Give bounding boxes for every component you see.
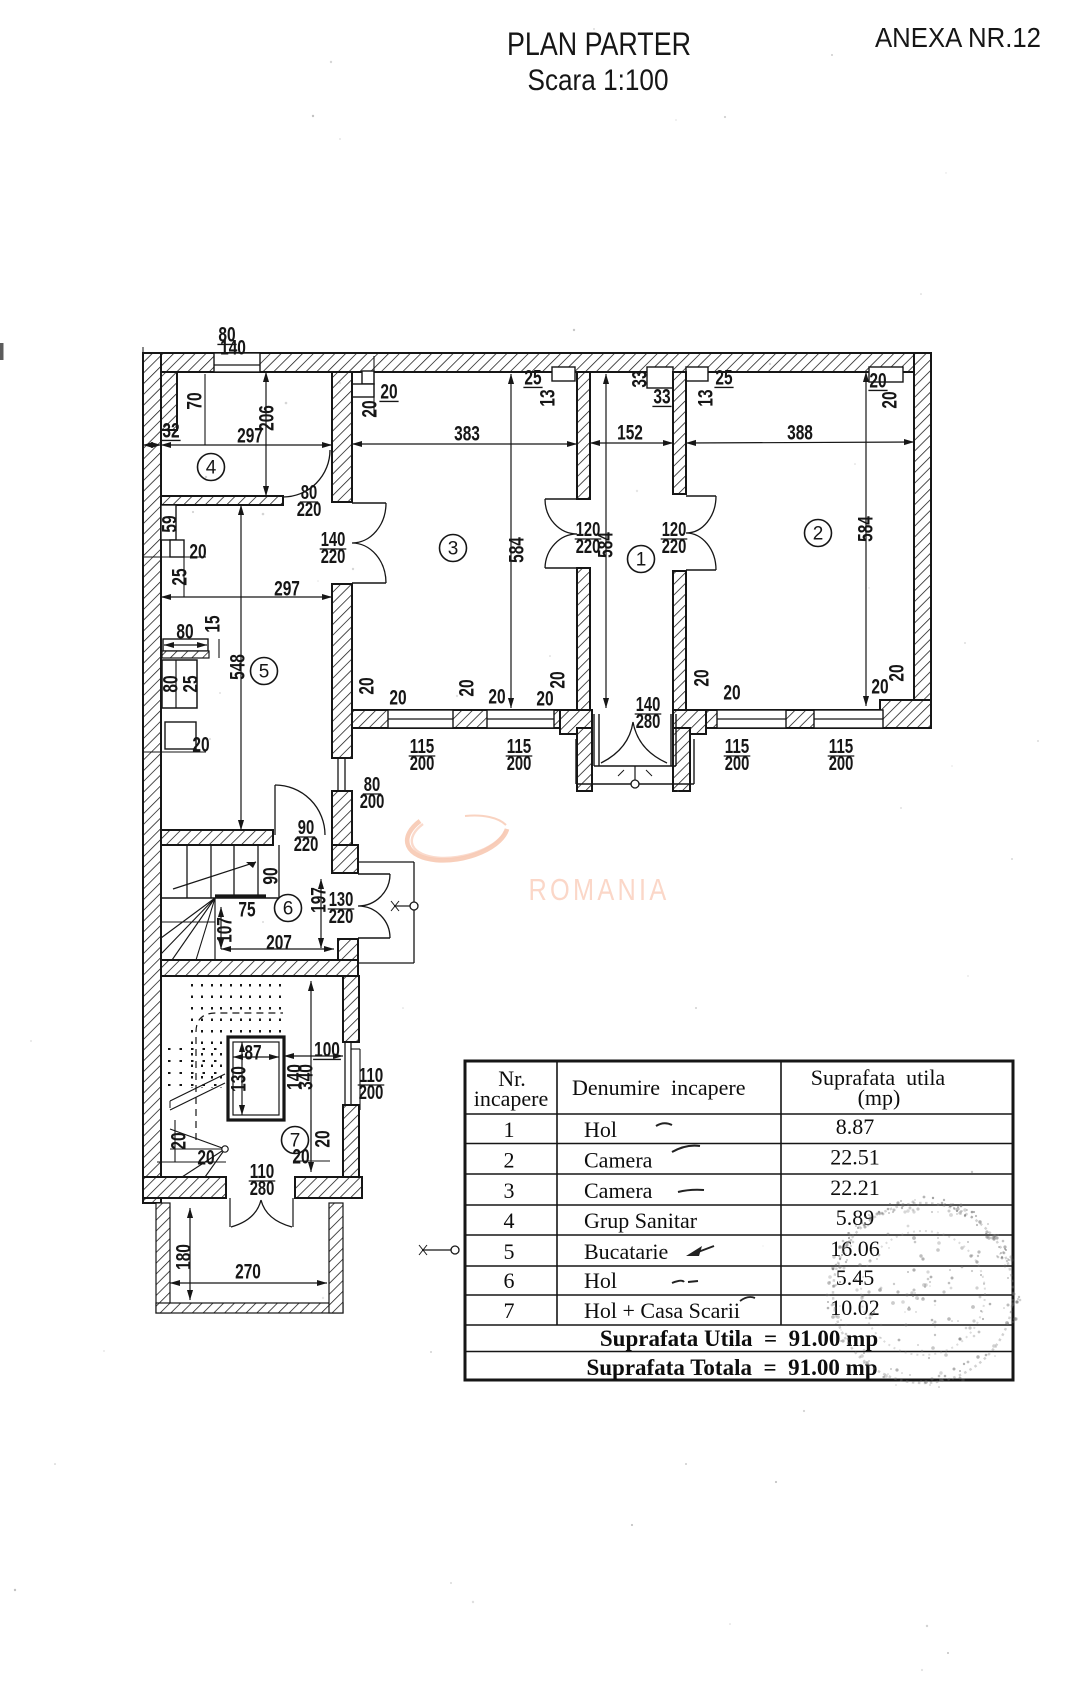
svg-text:87: 87 <box>244 1042 261 1065</box>
svg-text:25: 25 <box>180 675 203 692</box>
svg-text:13: 13 <box>537 389 560 406</box>
svg-text:220: 220 <box>297 499 322 521</box>
svg-text:80: 80 <box>176 621 193 644</box>
svg-text:1: 1 <box>504 1117 515 1142</box>
svg-text:20: 20 <box>312 1130 335 1147</box>
svg-text:Hol: Hol <box>584 1117 617 1142</box>
svg-text:20: 20 <box>869 370 886 393</box>
svg-text:130: 130 <box>228 1066 251 1092</box>
svg-text:206: 206 <box>256 405 279 431</box>
svg-text:548: 548 <box>227 654 250 680</box>
svg-text:584: 584 <box>595 532 618 558</box>
svg-text:6: 6 <box>504 1268 515 1293</box>
svg-text:25: 25 <box>524 367 541 390</box>
svg-text:388: 388 <box>787 422 813 445</box>
svg-text:584: 584 <box>506 537 529 563</box>
svg-text:200: 200 <box>725 753 750 775</box>
svg-text:22.21: 22.21 <box>830 1175 880 1200</box>
svg-text:32: 32 <box>162 420 179 443</box>
svg-text:incapere: incapere <box>474 1086 549 1111</box>
svg-text:20: 20 <box>389 687 406 710</box>
svg-text:ROMANIA: ROMANIA <box>529 872 670 907</box>
svg-text:75: 75 <box>238 899 255 922</box>
svg-text:3: 3 <box>504 1178 515 1203</box>
svg-text:90: 90 <box>260 867 283 884</box>
svg-text:1: 1 <box>636 550 647 571</box>
svg-text:200: 200 <box>410 753 435 775</box>
svg-text:20: 20 <box>192 734 209 757</box>
svg-text:5: 5 <box>504 1239 515 1264</box>
svg-text:220: 220 <box>329 906 354 928</box>
svg-text:20: 20 <box>380 381 397 404</box>
svg-text:20: 20 <box>723 682 740 705</box>
svg-text:ANEXA NR.12: ANEXA NR.12 <box>875 22 1041 53</box>
svg-text:280: 280 <box>636 711 661 733</box>
svg-text:Camera: Camera <box>584 1148 653 1173</box>
svg-text:200: 200 <box>359 1082 384 1104</box>
svg-text:20: 20 <box>359 400 382 417</box>
svg-text:25: 25 <box>715 367 732 390</box>
svg-text:270: 270 <box>235 1261 261 1284</box>
svg-text:340: 340 <box>295 1064 318 1090</box>
svg-text:200: 200 <box>507 753 532 775</box>
svg-text:16.06: 16.06 <box>830 1236 880 1261</box>
svg-text:20: 20 <box>189 541 206 564</box>
svg-text:PLAN PARTER: PLAN PARTER <box>507 26 691 62</box>
svg-text:33: 33 <box>653 386 670 409</box>
svg-text:20: 20 <box>197 1147 214 1170</box>
svg-text:Camera: Camera <box>584 1178 653 1203</box>
svg-text:220: 220 <box>294 834 319 856</box>
svg-text:22.51: 22.51 <box>830 1145 880 1170</box>
svg-text:33: 33 <box>629 370 652 387</box>
svg-text:140: 140 <box>220 337 246 360</box>
svg-text:Suprafata Totala = 91.00 mp: Suprafata Totala = 91.00 mp <box>586 1355 877 1380</box>
svg-text:25: 25 <box>169 568 192 585</box>
svg-text:20: 20 <box>356 677 379 694</box>
svg-text:(mp): (mp) <box>858 1085 901 1110</box>
svg-text:20: 20 <box>168 1132 191 1149</box>
svg-text:70: 70 <box>184 392 207 409</box>
svg-text:7: 7 <box>290 1131 301 1152</box>
svg-text:Denumire incapere: Denumire incapere <box>572 1075 745 1100</box>
svg-text:20: 20 <box>547 671 570 688</box>
svg-text:5.45: 5.45 <box>836 1265 875 1290</box>
svg-text:4: 4 <box>504 1208 515 1233</box>
svg-text:584: 584 <box>855 516 878 542</box>
svg-text:13: 13 <box>695 389 718 406</box>
svg-text:Scara 1:100: Scara 1:100 <box>528 64 669 97</box>
svg-text:Grup Sanitar: Grup Sanitar <box>584 1208 698 1233</box>
svg-text:Suprafata Utila = 91.00 mp: Suprafata Utila = 91.00 mp <box>600 1326 878 1351</box>
svg-text:20: 20 <box>536 688 553 711</box>
svg-text:6: 6 <box>283 899 294 920</box>
svg-text:15: 15 <box>202 615 225 632</box>
svg-text:20: 20 <box>456 679 479 696</box>
svg-text:20: 20 <box>691 669 714 686</box>
svg-text:8.87: 8.87 <box>836 1114 875 1139</box>
svg-text:Bucatarie: Bucatarie <box>584 1239 668 1264</box>
svg-text:20: 20 <box>886 664 909 681</box>
svg-text:2: 2 <box>813 524 824 545</box>
svg-text:207: 207 <box>266 932 292 955</box>
svg-text:152: 152 <box>617 422 643 445</box>
svg-text:2: 2 <box>504 1148 515 1173</box>
svg-text:20: 20 <box>871 676 888 699</box>
svg-text:180: 180 <box>173 1244 196 1270</box>
svg-text:59: 59 <box>159 515 182 532</box>
svg-text:Hol + Casa Scarii: Hol + Casa Scarii <box>584 1298 740 1323</box>
svg-text:4: 4 <box>206 458 217 479</box>
svg-text:Hol: Hol <box>584 1268 617 1293</box>
svg-text:197: 197 <box>308 887 331 913</box>
svg-text:200: 200 <box>360 791 385 813</box>
svg-text:200: 200 <box>829 753 854 775</box>
svg-text:297: 297 <box>274 578 300 601</box>
svg-text:20: 20 <box>488 686 505 709</box>
svg-text:100: 100 <box>314 1039 340 1062</box>
svg-text:383: 383 <box>454 423 480 446</box>
svg-text:5: 5 <box>259 662 270 683</box>
svg-text:80: 80 <box>160 675 183 692</box>
svg-text:220: 220 <box>321 546 346 568</box>
svg-text:20: 20 <box>879 391 902 408</box>
svg-text:3: 3 <box>448 539 459 560</box>
svg-text:7: 7 <box>504 1298 515 1323</box>
svg-text:220: 220 <box>662 536 687 558</box>
svg-text:280: 280 <box>250 1178 275 1200</box>
svg-text:107: 107 <box>214 917 237 943</box>
